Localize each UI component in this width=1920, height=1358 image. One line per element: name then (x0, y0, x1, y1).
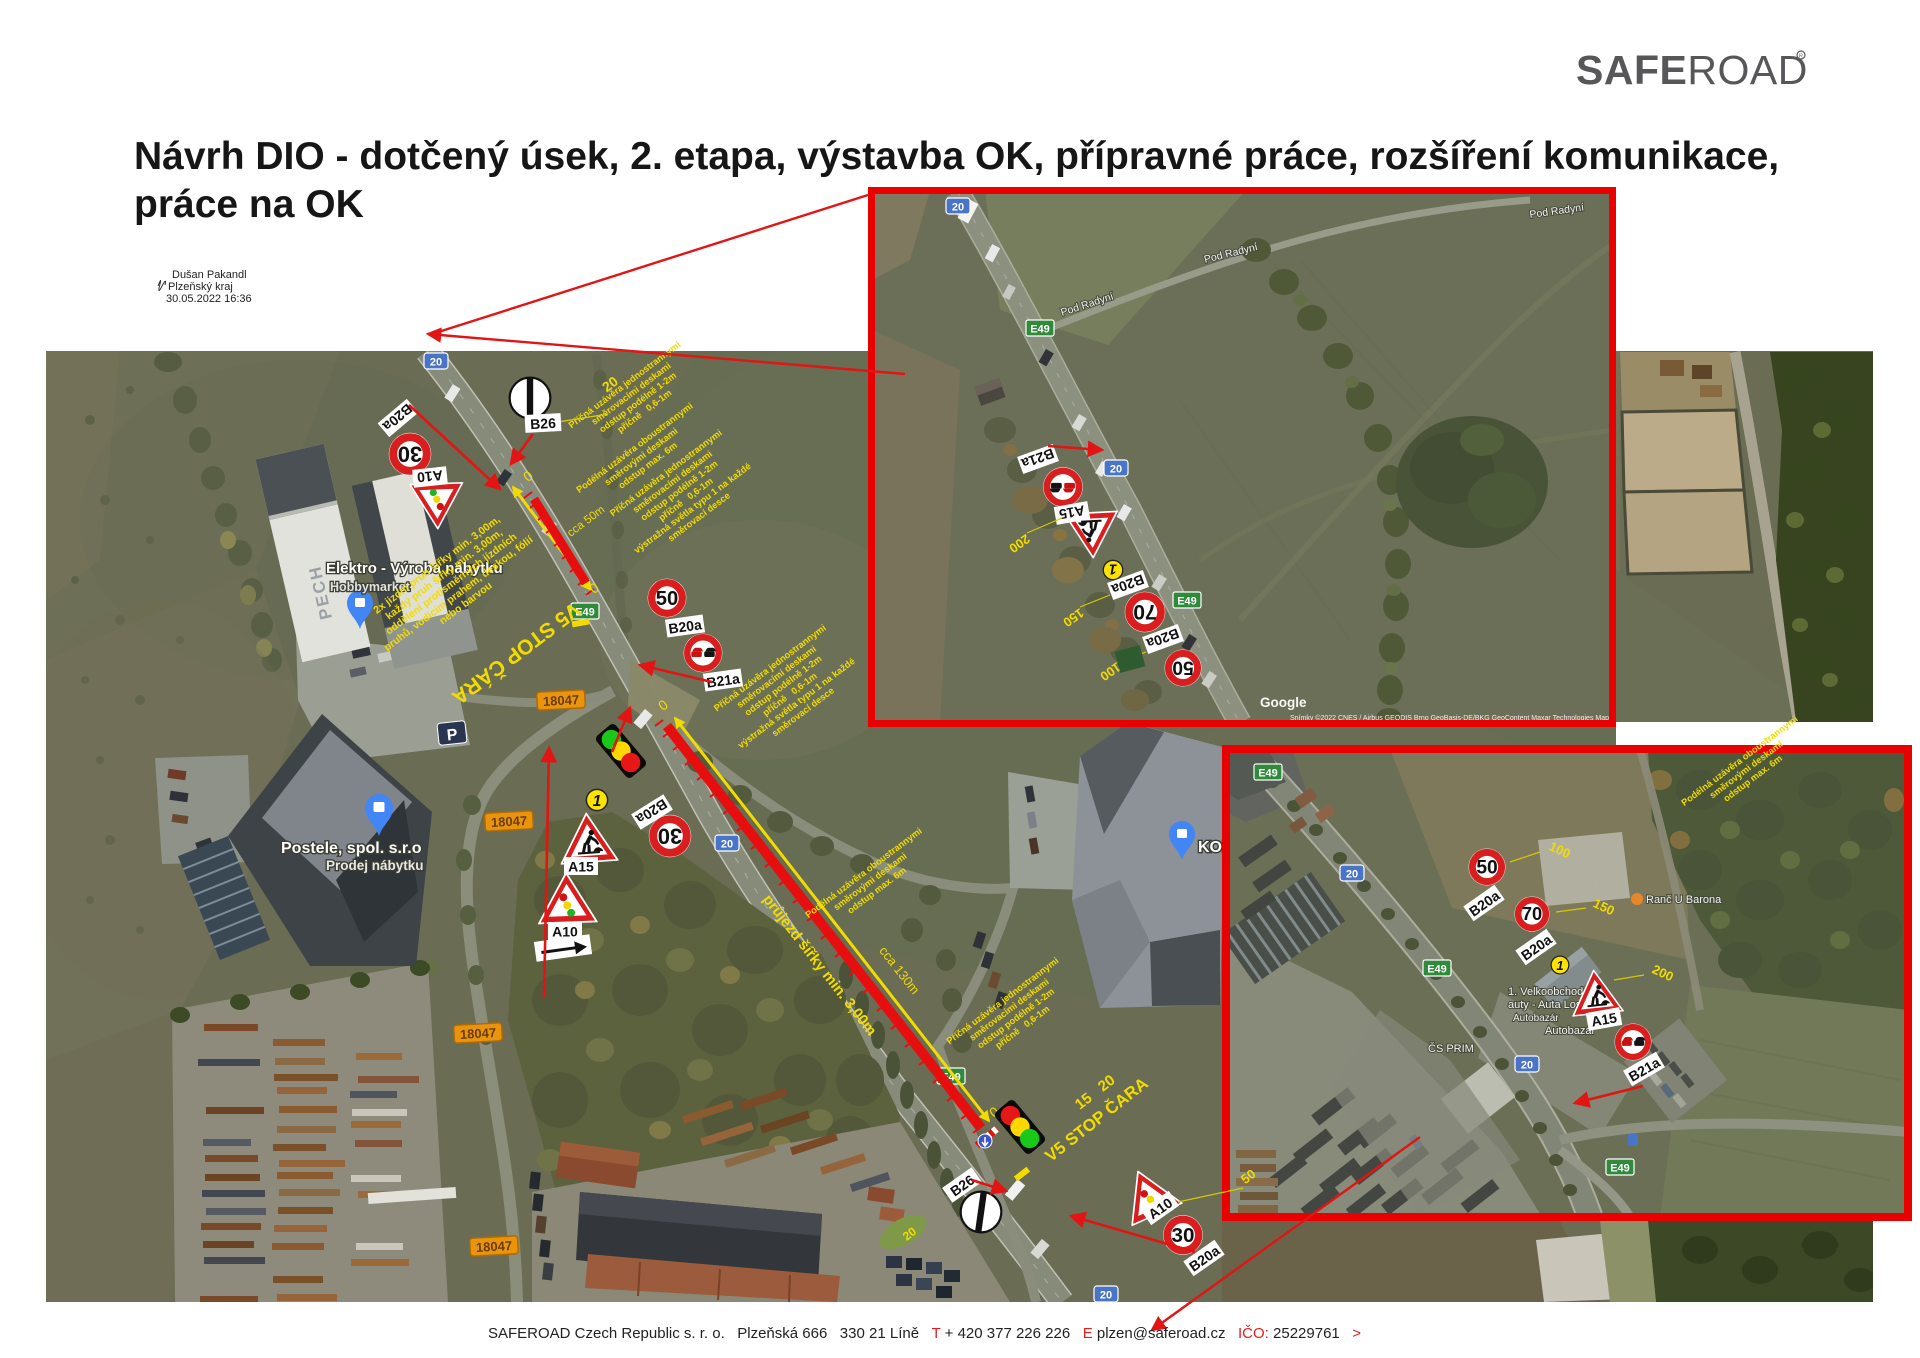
svg-text:30.05.2022 16:36: 30.05.2022 16:36 (166, 293, 252, 305)
svg-text:Autobazár: Autobazár (1513, 1013, 1559, 1024)
svg-text:18047: 18047 (491, 813, 528, 830)
svg-text:20: 20 (1521, 1060, 1533, 1072)
svg-text:20: 20 (721, 839, 733, 851)
svg-text:Prodej nábytku: Prodej nábytku (326, 858, 424, 873)
svg-text:20: 20 (430, 357, 442, 369)
svg-text:E49: E49 (1427, 964, 1447, 976)
svg-text:práce na OK: práce na OK (134, 183, 364, 226)
svg-text:18047: 18047 (543, 692, 580, 709)
svg-text:Návrh DIO - dotčený úsek, 2. e: Návrh DIO - dotčený úsek, 2. etapa, výst… (134, 135, 1779, 178)
svg-text:20: 20 (1100, 1290, 1112, 1302)
svg-text:E49: E49 (1610, 1163, 1630, 1175)
svg-text:18047: 18047 (460, 1025, 497, 1042)
svg-text:Autobazár: Autobazár (1545, 1025, 1595, 1037)
svg-text:1. Velkoobchod: 1. Velkoobchod (1508, 986, 1583, 998)
svg-text:SAFEROAD Czech Republic s. r.: SAFEROAD Czech Republic s. r. o. Plzeňsk… (488, 1325, 1361, 1342)
svg-text:SAFEROAD: SAFEROAD (1576, 47, 1808, 93)
svg-text:B26: B26 (530, 415, 557, 432)
svg-text:Ranč U Barona: Ranč U Barona (1646, 894, 1722, 906)
svg-text:E49: E49 (1258, 768, 1278, 780)
svg-text:A15: A15 (568, 859, 594, 875)
svg-text:A10: A10 (416, 467, 443, 486)
svg-text:P: P (446, 726, 459, 744)
svg-text:Dušan Pakandl: Dušan Pakandl (172, 269, 247, 281)
svg-text:20: 20 (1346, 869, 1358, 881)
svg-text:20: 20 (1110, 464, 1122, 476)
svg-text:Plzeňský kraj: Plzeňský kraj (168, 281, 233, 293)
svg-text:ČS PRIM: ČS PRIM (1428, 1042, 1474, 1055)
svg-text:R: R (1799, 54, 1803, 60)
svg-text:18047: 18047 (476, 1238, 513, 1255)
svg-text:20: 20 (952, 202, 964, 214)
svg-text:E49: E49 (1177, 596, 1197, 608)
svg-text:E49: E49 (1030, 324, 1050, 336)
svg-text:Postele, spol. s.r.o: Postele, spol. s.r.o (281, 840, 422, 857)
svg-text:Google: Google (1260, 695, 1307, 710)
